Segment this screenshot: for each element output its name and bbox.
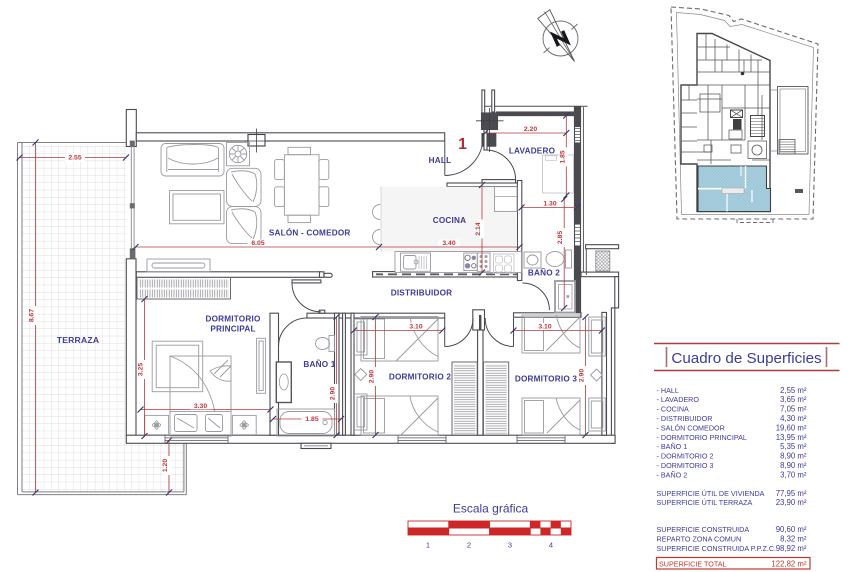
svg-text:REPARTO ZONA COMUN: REPARTO ZONA COMUN	[657, 535, 742, 544]
svg-text:23,90 m²: 23,90 m²	[776, 498, 807, 507]
svg-text:3,65 m²: 3,65 m²	[780, 395, 807, 404]
svg-text:SUPERFICIE CONSTRUIDA: SUPERFICIE CONSTRUIDA	[657, 525, 750, 534]
svg-text:3.30: 3.30	[194, 403, 207, 410]
svg-text:- SALÓN COMEDOR: - SALÓN COMEDOR	[657, 423, 725, 432]
svg-text:2.90: 2.90	[330, 387, 337, 400]
svg-text:1: 1	[426, 541, 430, 550]
svg-text:4: 4	[549, 541, 553, 550]
svg-text:HALL: HALL	[429, 156, 452, 165]
svg-text:- LAVADERO: - LAVADERO	[657, 395, 700, 404]
svg-text:SUPERFICIE ÚTIL TERRAZA: SUPERFICIE ÚTIL TERRAZA	[657, 498, 753, 507]
svg-text:2.20: 2.20	[524, 126, 537, 133]
svg-text:LAVADERO: LAVADERO	[509, 147, 556, 156]
svg-text:77,95 m²: 77,95 m²	[776, 489, 807, 498]
svg-text:3.10: 3.10	[538, 324, 551, 331]
svg-text:BAÑO 2: BAÑO 2	[528, 268, 560, 278]
svg-text:19,60 m²: 19,60 m²	[776, 423, 807, 432]
svg-text:- DISTRIBUIDOR: - DISTRIBUIDOR	[657, 414, 713, 423]
svg-text:7,05 m²: 7,05 m²	[780, 405, 807, 414]
svg-text:SALÓN - COMEDOR: SALÓN - COMEDOR	[269, 227, 351, 238]
svg-text:98,92 m²: 98,92 m²	[776, 544, 807, 553]
svg-text:4,30 m²: 4,30 m²	[780, 414, 807, 423]
svg-text:1.85: 1.85	[559, 150, 566, 163]
svg-text:3.10: 3.10	[409, 324, 422, 331]
svg-text:SUPERFICIE CONSTRUIDA P.P.Z.C.: SUPERFICIE CONSTRUIDA P.P.Z.C.	[657, 544, 777, 553]
svg-text:DORMITORIO: DORMITORIO	[205, 315, 260, 324]
svg-text:BAÑO 1: BAÑO 1	[303, 359, 335, 369]
svg-text:3.40: 3.40	[442, 240, 455, 247]
svg-text:2.90: 2.90	[369, 370, 376, 383]
svg-text:8.67: 8.67	[29, 309, 36, 322]
svg-text:2: 2	[467, 541, 471, 550]
svg-text:13,95 m²: 13,95 m²	[776, 433, 807, 442]
svg-text:SUPERFICIE TOTAL: SUPERFICIE TOTAL	[659, 559, 727, 568]
svg-text:- DORMITORIO PRINCIPAL: - DORMITORIO PRINCIPAL	[657, 433, 747, 442]
svg-text:- DORMITORIO 2: - DORMITORIO 2	[657, 452, 714, 461]
svg-text:90,60 m²: 90,60 m²	[776, 525, 807, 534]
svg-text:2.90: 2.90	[579, 369, 586, 382]
svg-text:- HALL: - HALL	[657, 386, 679, 395]
svg-text:Cuadro de Superficies: Cuadro de Superficies	[671, 350, 822, 367]
svg-text:5,35 m²: 5,35 m²	[780, 442, 807, 451]
svg-text:2.55: 2.55	[68, 154, 81, 161]
svg-text:2.85: 2.85	[557, 231, 564, 244]
svg-text:- BAÑO 1: - BAÑO 1	[657, 442, 688, 451]
svg-text:8,90 m²: 8,90 m²	[780, 452, 807, 461]
svg-text:6.05: 6.05	[251, 240, 264, 247]
svg-text:- DORMITORIO 3: - DORMITORIO 3	[657, 461, 714, 470]
svg-text:- COCINA: - COCINA	[657, 405, 690, 414]
svg-text:COCINA: COCINA	[433, 216, 467, 225]
svg-text:Escala gráfica: Escala gráfica	[453, 502, 529, 516]
svg-text:DORMITORIO 2: DORMITORIO 2	[389, 373, 452, 382]
svg-text:2.14: 2.14	[475, 222, 482, 235]
svg-text:8,90 m²: 8,90 m²	[780, 461, 807, 470]
svg-text:SUPERFICIE ÚTIL DE VIVIENDA: SUPERFICIE ÚTIL DE VIVIENDA	[657, 489, 765, 498]
svg-text:1: 1	[458, 136, 467, 153]
svg-text:3,70 m²: 3,70 m²	[780, 470, 807, 479]
svg-text:1.30: 1.30	[543, 201, 556, 208]
svg-text:1.85: 1.85	[305, 416, 318, 423]
svg-text:122,82 m²: 122,82 m²	[771, 559, 807, 568]
svg-text:DISTRIBUIDOR: DISTRIBUIDOR	[391, 289, 453, 298]
svg-text:TERRAZA: TERRAZA	[57, 335, 99, 345]
svg-text:8,32 m²: 8,32 m²	[780, 535, 807, 544]
svg-text:2,55 m²: 2,55 m²	[780, 386, 807, 395]
svg-text:PRINCIPAL: PRINCIPAL	[210, 325, 255, 334]
svg-text:DORMITORIO 3: DORMITORIO 3	[515, 375, 578, 384]
svg-text:3: 3	[508, 541, 512, 550]
svg-text:1.20: 1.20	[162, 459, 169, 472]
svg-text:3.25: 3.25	[138, 363, 145, 376]
svg-text:- BAÑO 2: - BAÑO 2	[657, 470, 688, 479]
